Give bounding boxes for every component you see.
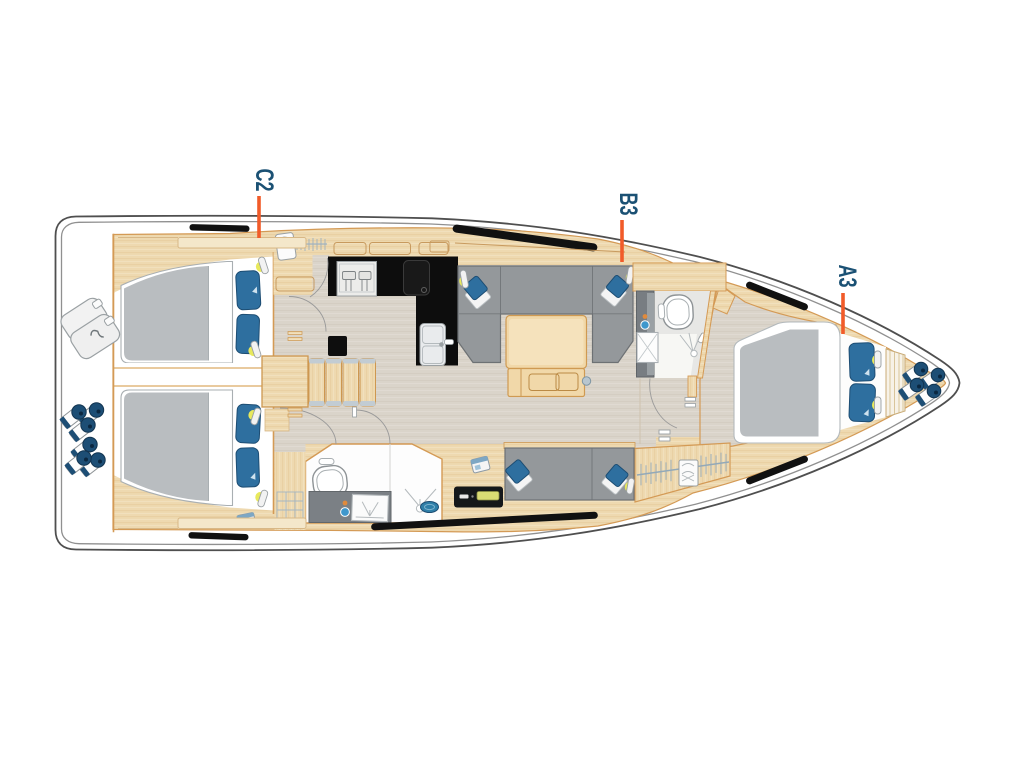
svg-text:A3: A3 xyxy=(833,265,861,288)
svg-text:B3: B3 xyxy=(614,193,642,216)
svg-text:C2: C2 xyxy=(250,169,278,192)
